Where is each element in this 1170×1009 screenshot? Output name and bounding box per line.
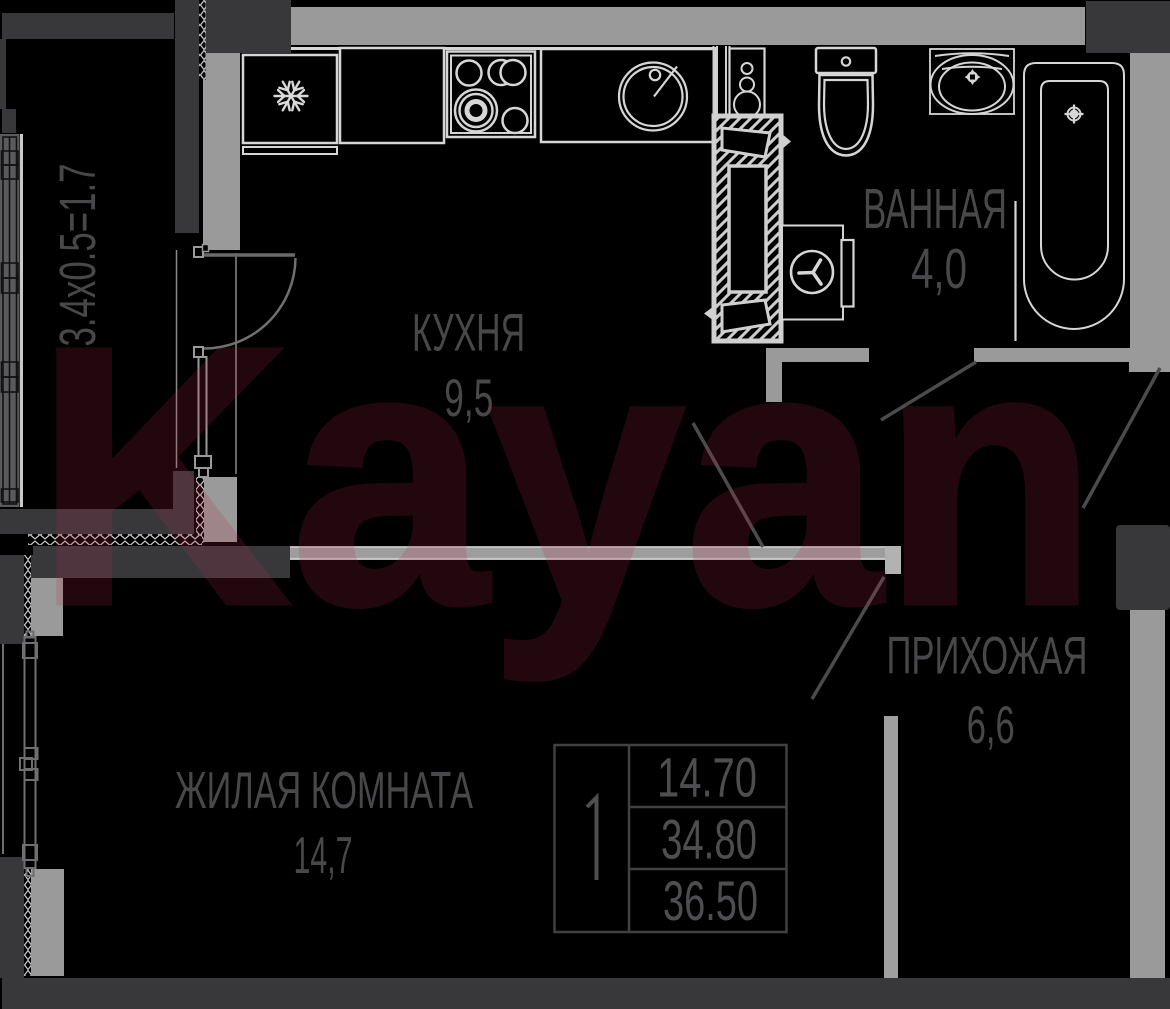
svg-text:ЖИЛАЯ КОМНАТА: ЖИЛАЯ КОМНАТА — [175, 762, 473, 820]
svg-text:34.80: 34.80 — [661, 808, 757, 871]
svg-text:14,7: 14,7 — [294, 827, 353, 885]
svg-text:36.50: 36.50 — [663, 869, 758, 932]
svg-text:6,6: 6,6 — [967, 696, 1015, 755]
svg-text:Kayan: Kayan — [35, 270, 1098, 684]
svg-text:ВАННАЯ: ВАННАЯ — [863, 177, 1007, 241]
svg-text:14.70: 14.70 — [657, 746, 757, 809]
